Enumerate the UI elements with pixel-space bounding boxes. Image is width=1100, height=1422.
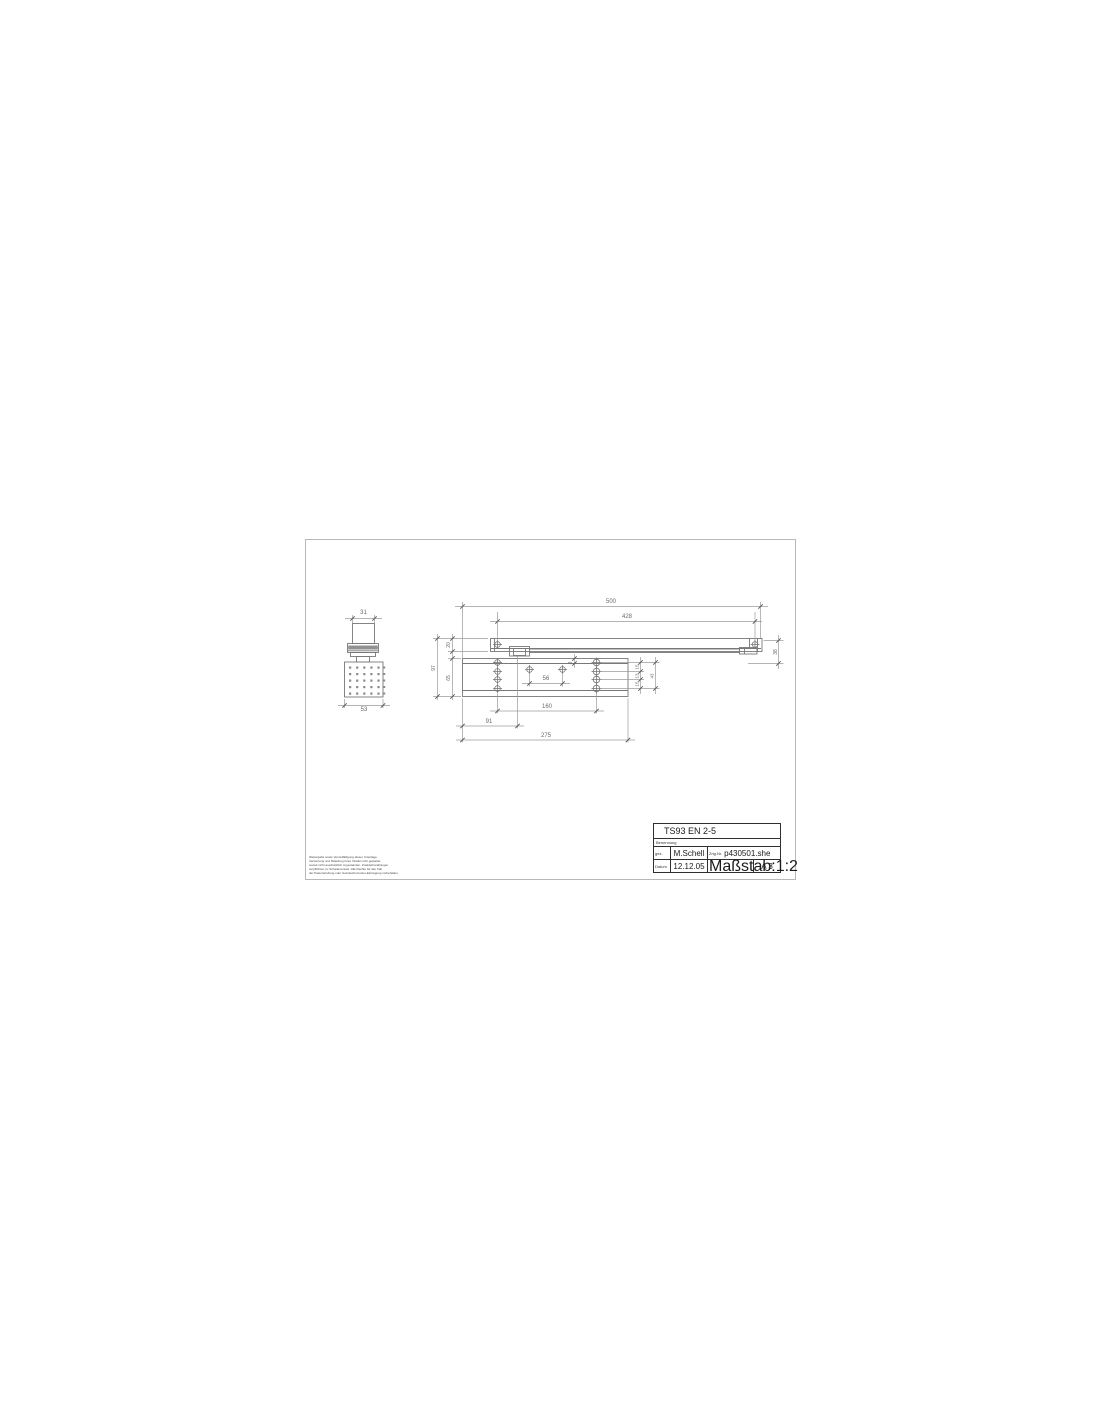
title-block-row-date: Datum 12.12.05 Maßstab: 1:2 A 3 <box>654 860 780 873</box>
dim-rail-height: 20 <box>446 642 452 648</box>
dim-overall-length: 500 <box>606 599 616 605</box>
dim-row-mid: 13 <box>634 673 639 678</box>
drawn-label: gez. <box>654 847 671 859</box>
drawing-sheet: 31 53 500 428 20 65 97 8 56 15 13 15 43 … <box>0 0 1100 1422</box>
title-block: TS93 EN 2-5 Benennung gez. M.Schell Zng.… <box>653 823 781 873</box>
main-view <box>463 639 763 697</box>
dim-mid-hole-span: 56 <box>543 676 550 682</box>
closer-dark-band <box>348 646 378 650</box>
plate-edge-ticks <box>383 667 385 695</box>
dim-body-offset: 8 <box>568 662 574 665</box>
drawing-no: p430501.she <box>724 849 770 858</box>
date-value: 12.12.05 <box>671 860 708 873</box>
dim-row-top: 15 <box>634 664 639 669</box>
drawn-by: M.Schell <box>671 847 708 859</box>
dim-rail-hole-span: 428 <box>622 614 632 620</box>
dim-total-height: 97 <box>431 665 437 671</box>
side-view <box>345 624 386 698</box>
dim-side-width-top: 31 <box>360 610 367 616</box>
drawing-no-label: Zng.Nr. <box>709 851 722 856</box>
dim-row-bottom: 15 <box>634 681 639 686</box>
dim-rail-drop: 38 <box>773 649 779 655</box>
dim-plate-height: 65 <box>446 675 452 681</box>
dimension-lines <box>338 602 784 743</box>
legal-disclaimer: Weitergabe sowie Vervielfältigung dieser… <box>309 856 443 876</box>
slide-rail <box>491 639 763 652</box>
date-label: Datum <box>654 860 671 873</box>
sheet-format: A 3 <box>754 860 780 873</box>
dim-rows-total: 43 <box>650 673 655 678</box>
cad-linework <box>0 0 1100 1422</box>
drawing-title: TS93 EN 2-5 <box>654 824 780 839</box>
dim-axis-offset: 91 <box>486 719 493 725</box>
dim-plate-length: 275 <box>541 733 551 739</box>
disclaimer-line: der Patenterteilung oder Gebrauchsmuster… <box>309 872 443 876</box>
plate-hole-grid <box>348 666 382 697</box>
dim-hole-span: 160 <box>542 704 552 710</box>
name-label: Benennung <box>654 839 780 847</box>
closer-top-section <box>353 624 375 644</box>
dim-side-width-bottom: 53 <box>361 707 368 713</box>
closer-arm <box>530 649 740 653</box>
